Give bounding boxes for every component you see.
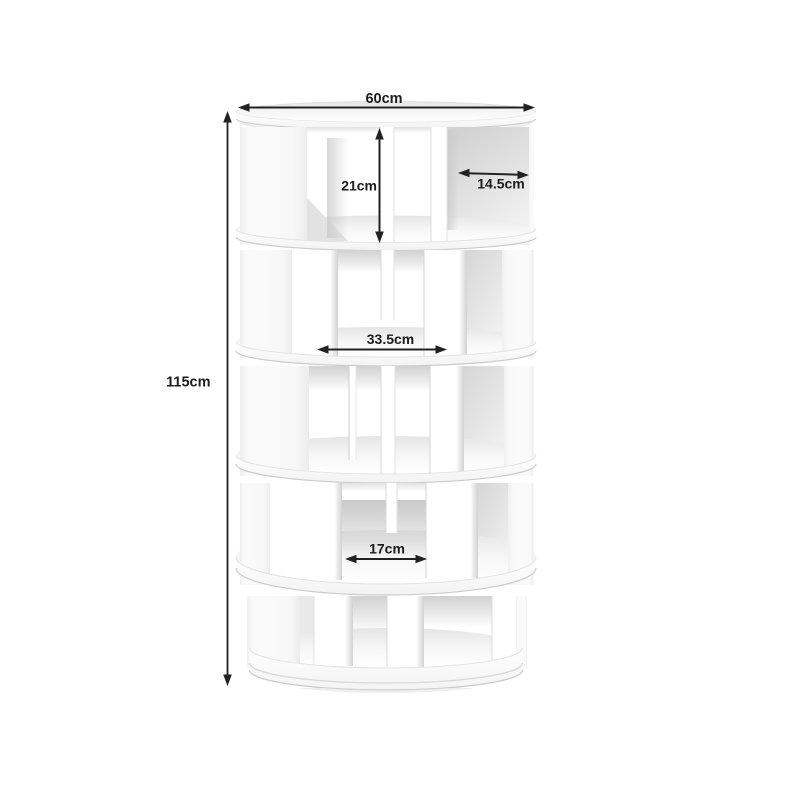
svg-text:60cm: 60cm [365, 91, 402, 107]
svg-text:33.5cm: 33.5cm [367, 331, 414, 347]
svg-text:17cm: 17cm [369, 541, 405, 557]
svg-text:21cm: 21cm [341, 178, 377, 194]
svg-text:14.5cm: 14.5cm [477, 176, 524, 192]
svg-text:115cm: 115cm [166, 375, 210, 391]
